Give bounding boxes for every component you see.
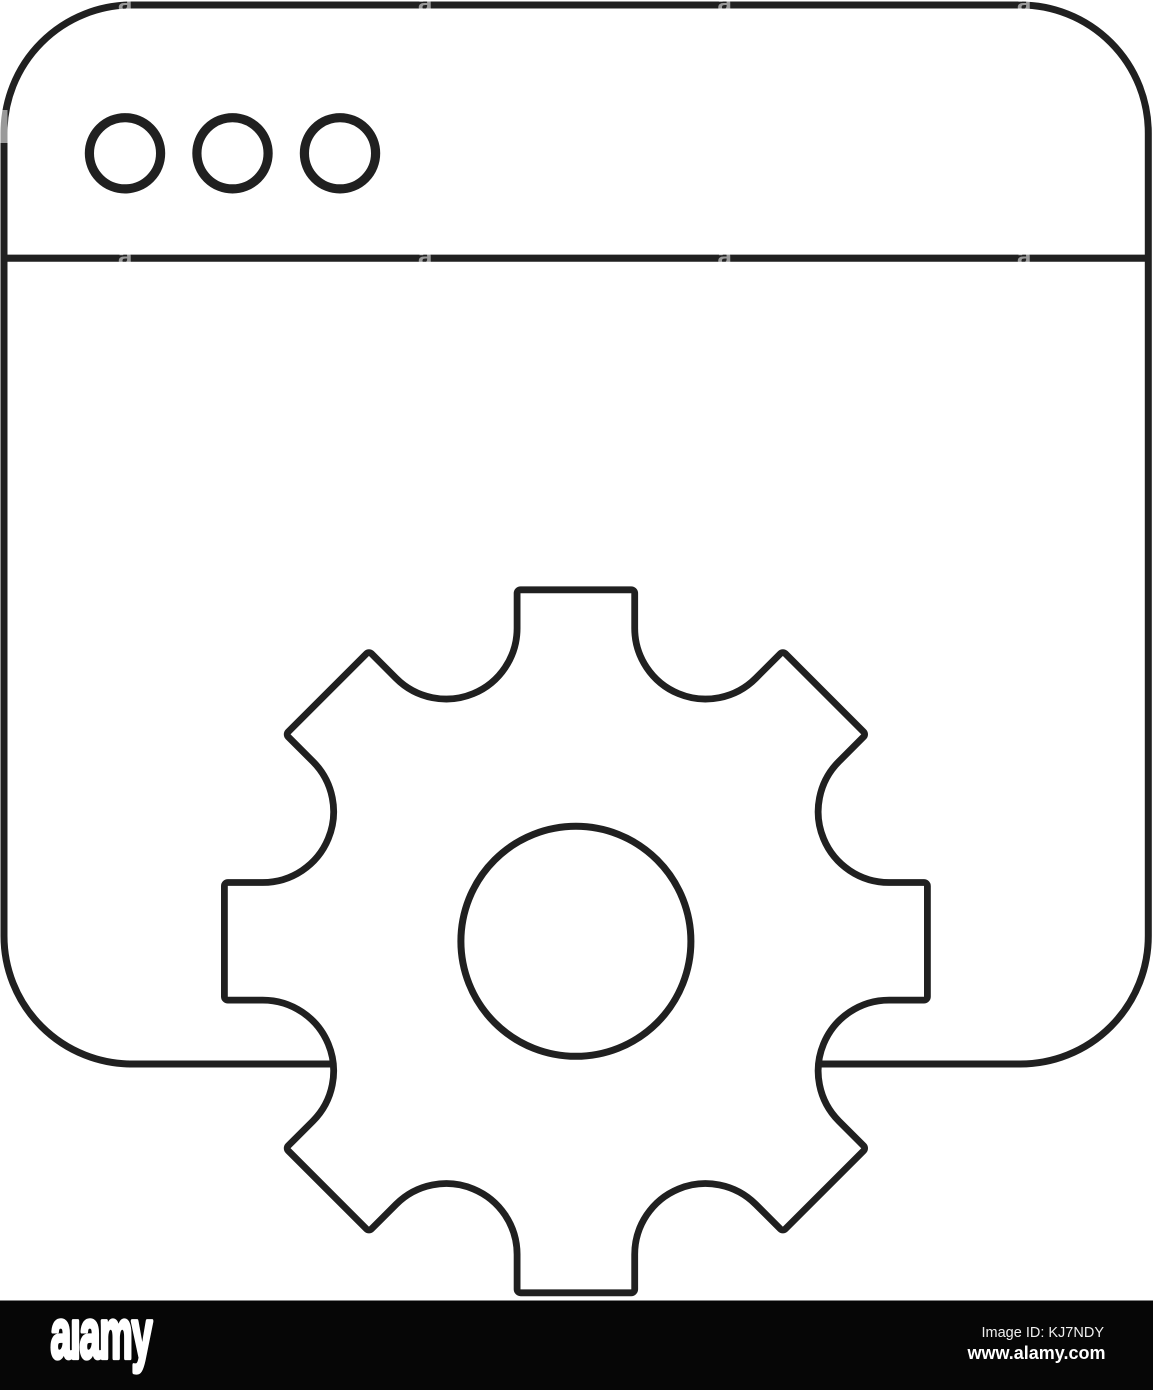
svg-text:aıamy: aıamy: [51, 1294, 153, 1373]
svg-text:Image ID: KJ7NDY: Image ID: KJ7NDY: [982, 1325, 1105, 1341]
svg-text:a: a: [418, 0, 433, 18]
svg-text:a: a: [718, 241, 733, 271]
svg-text:a: a: [1017, 0, 1032, 18]
svg-text:a: a: [118, 0, 133, 18]
svg-text:www.alamy.com: www.alamy.com: [966, 1343, 1105, 1363]
svg-text:a: a: [1017, 241, 1032, 271]
svg-text:a: a: [718, 0, 733, 18]
svg-text:a: a: [418, 241, 433, 271]
svg-text:a: a: [118, 241, 133, 271]
